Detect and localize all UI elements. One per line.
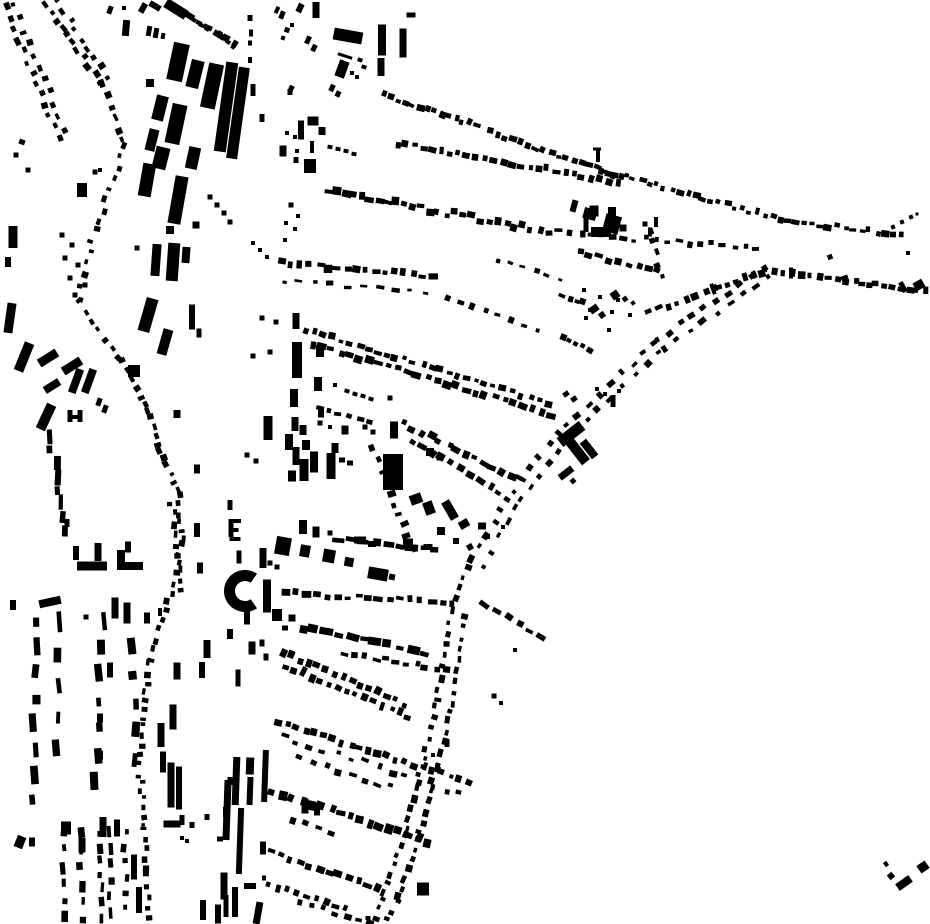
- building-footprint: [609, 234, 617, 240]
- building-footprint: [251, 354, 256, 359]
- building-footprint: [282, 626, 288, 631]
- building-footprint: [251, 84, 256, 96]
- building-footprint: [382, 656, 389, 661]
- building-footprint: [29, 838, 35, 847]
- building-footprint: [182, 535, 186, 541]
- building-footprint: [79, 881, 86, 893]
- building-footprint: [603, 392, 607, 396]
- building-footprint: [906, 287, 915, 294]
- building-footprint: [147, 894, 151, 900]
- building-footprint: [404, 544, 418, 552]
- building-footprint: [80, 917, 86, 924]
- building-footprint: [249, 642, 256, 655]
- building-footprint: [417, 203, 425, 208]
- building-footprint: [293, 313, 300, 329]
- building-footprint: [578, 248, 585, 254]
- building-footprint: [607, 328, 611, 332]
- building-footprint: [664, 240, 670, 244]
- building-footprint: [108, 877, 114, 884]
- building-footprint: [308, 117, 319, 126]
- building-footprint: [428, 273, 438, 279]
- building-footprint: [140, 732, 144, 739]
- building-footprint: [866, 282, 872, 288]
- building-footprint: [687, 241, 693, 248]
- building-footprint: [430, 547, 438, 553]
- building-footprint: [807, 273, 811, 279]
- building-footprint: [305, 261, 311, 267]
- building-footprint: [411, 270, 418, 277]
- building-footprint: [260, 114, 265, 122]
- building-footprint: [158, 608, 162, 616]
- building-footprint: [98, 897, 104, 907]
- building-footprint: [248, 41, 252, 46]
- building-footprint: [732, 206, 737, 211]
- building-footprint: [185, 839, 189, 843]
- building-footprint: [881, 230, 890, 238]
- building-footprint: [324, 265, 333, 273]
- building-footprint: [248, 15, 253, 21]
- building-footprint: [122, 6, 126, 10]
- building-footprint: [899, 231, 904, 237]
- building-footprint: [174, 410, 181, 418]
- building-footprint: [443, 666, 451, 673]
- building-footprint: [823, 224, 832, 232]
- building-footprint: [54, 456, 61, 470]
- building-footprint: [59, 494, 63, 509]
- building-footprint: [175, 500, 180, 506]
- building-footprint: [566, 229, 572, 236]
- building-footprint: [582, 288, 586, 292]
- building-footprint: [108, 907, 112, 918]
- building-footprint: [388, 396, 393, 401]
- building-footprint: [391, 197, 399, 206]
- building-footprint: [170, 705, 177, 730]
- building-footprint: [292, 342, 302, 378]
- building-footprint: [453, 538, 459, 544]
- building-footprint: [334, 412, 341, 417]
- building-footprint: [146, 915, 153, 921]
- building-footprint: [289, 615, 296, 622]
- building-footprint: [844, 226, 849, 230]
- building-footprint: [588, 233, 595, 237]
- building-footprint: [97, 831, 102, 837]
- building-footprint: [451, 691, 456, 696]
- building-footprint: [108, 858, 114, 868]
- building-footprint: [230, 537, 241, 541]
- building-footprint: [177, 518, 181, 524]
- building-footprint: [333, 383, 337, 387]
- building-footprint: [222, 211, 227, 216]
- building-footprint: [615, 179, 621, 187]
- building-footprint: [143, 871, 149, 877]
- building-footprint: [292, 588, 299, 595]
- building-footprint: [274, 536, 292, 556]
- building-footprint: [194, 523, 200, 537]
- building-footprint: [164, 821, 181, 828]
- building-footprint: [29, 713, 37, 732]
- building-footprint: [124, 603, 131, 624]
- building-footprint: [178, 578, 183, 583]
- building-footprint: [83, 283, 88, 288]
- building-footprint: [265, 255, 269, 259]
- building-footprint: [95, 543, 102, 561]
- building-footprint: [516, 164, 524, 170]
- building-footprint: [378, 25, 386, 56]
- building-footprint: [61, 911, 68, 922]
- building-footprint: [373, 538, 381, 546]
- building-footprint: [324, 594, 331, 600]
- building-footprint: [471, 154, 478, 161]
- building-footprint: [326, 281, 333, 286]
- building-footprint: [263, 580, 271, 613]
- building-footprint: [248, 57, 252, 63]
- building-footprint: [107, 826, 112, 838]
- building-footprint: [73, 546, 79, 560]
- building-footprint: [208, 195, 213, 200]
- building-footprint: [352, 265, 361, 273]
- building-footprint: [264, 416, 273, 440]
- building-footprint: [563, 169, 569, 177]
- building-footprint: [77, 827, 85, 838]
- building-footprint: [274, 320, 279, 325]
- building-footprint: [449, 601, 454, 608]
- building-footprint: [359, 192, 365, 200]
- building-footprint: [59, 511, 65, 523]
- building-footprint: [339, 458, 345, 463]
- building-footprint: [390, 422, 398, 439]
- building-footprint: [476, 218, 484, 225]
- building-footprint: [360, 636, 369, 641]
- building-footprint: [295, 149, 299, 153]
- building-footprint: [62, 879, 66, 887]
- building-footprint: [197, 563, 203, 574]
- building-footprint: [744, 244, 749, 249]
- building-footprint: [84, 615, 89, 620]
- building-footprint: [144, 672, 151, 679]
- building-footprint: [355, 75, 359, 79]
- building-footprint: [141, 823, 145, 827]
- building-footprint: [260, 316, 265, 321]
- building-footprint: [131, 721, 140, 737]
- building-footprint: [881, 283, 887, 289]
- building-footprint: [140, 780, 146, 784]
- building-footprint: [174, 663, 181, 680]
- building-footprint: [76, 263, 81, 268]
- building-footprint: [62, 898, 68, 904]
- building-footprint: [620, 225, 627, 232]
- building-footprint: [33, 742, 39, 757]
- building-footprint: [166, 226, 174, 234]
- building-footprint: [215, 905, 221, 924]
- building-footprint: [771, 267, 778, 275]
- building-footprint: [801, 220, 807, 225]
- building-footprint: [420, 664, 428, 671]
- building-footprint: [923, 287, 928, 295]
- building-footprint: [289, 203, 294, 208]
- building-footprint: [249, 30, 253, 37]
- building-footprint: [258, 248, 262, 252]
- building-footprint: [364, 595, 372, 601]
- building-footprint: [260, 640, 265, 647]
- building-footprint: [327, 145, 333, 150]
- building-footprint: [33, 637, 40, 655]
- building-footprint: [529, 165, 533, 170]
- building-footprint: [378, 58, 385, 76]
- building-footprint: [93, 170, 98, 175]
- building-footprint: [114, 820, 120, 837]
- building-footprint: [866, 226, 871, 232]
- building-footprint: [328, 425, 332, 429]
- building-footprint: [451, 701, 455, 708]
- building-footprint: [96, 698, 101, 707]
- building-footprint: [136, 775, 141, 779]
- building-footprint: [190, 822, 195, 828]
- building-footprint: [9, 226, 18, 248]
- building-footprint: [29, 794, 35, 805]
- building-footprint: [777, 217, 784, 224]
- building-footprint: [79, 847, 83, 854]
- building-footprint: [33, 618, 39, 627]
- building-footprint: [628, 313, 632, 317]
- building-footprint: [197, 329, 202, 338]
- building-footprint: [598, 233, 604, 237]
- building-footprint: [53, 648, 61, 663]
- building-footprint: [264, 654, 269, 661]
- building-footprint: [228, 220, 233, 225]
- building-footprint: [752, 247, 759, 251]
- building-footprint: [412, 143, 418, 147]
- building-footprint: [417, 883, 429, 896]
- building-footprint: [309, 903, 315, 908]
- building-footprint: [431, 753, 435, 757]
- building-footprint: [167, 502, 172, 506]
- building-footprint: [407, 13, 416, 18]
- building-footprint: [584, 216, 589, 232]
- building-footprint: [144, 884, 149, 889]
- building-footprint: [285, 131, 289, 135]
- building-footprint: [443, 641, 449, 647]
- building-footprint: [136, 887, 142, 913]
- building-footprint: [77, 283, 83, 288]
- building-footprint: [494, 217, 502, 226]
- building-footprint: [421, 746, 427, 753]
- building-footprint: [262, 876, 266, 881]
- building-footprint: [199, 662, 205, 678]
- building-footprint: [434, 667, 440, 673]
- building-footprint: [144, 613, 150, 624]
- building-footprint: [501, 525, 505, 529]
- building-footprint: [224, 895, 229, 917]
- building-footprint: [251, 241, 255, 245]
- building-footprint: [14, 153, 19, 158]
- building-footprint: [194, 465, 200, 474]
- building-footprint: [215, 203, 220, 208]
- building-footprint: [302, 440, 310, 450]
- building-footprint: [96, 722, 103, 732]
- building-footprint: [916, 213, 919, 216]
- building-footprint: [513, 648, 517, 652]
- building-footprint: [399, 268, 405, 276]
- building-footprint: [73, 293, 78, 298]
- building-footprint: [351, 152, 357, 157]
- building-footprint: [724, 200, 732, 206]
- building-footprint: [97, 872, 102, 878]
- building-footprint: [81, 897, 85, 905]
- building-footprint: [790, 268, 796, 277]
- building-footprint: [232, 887, 238, 917]
- building-footprint: [145, 682, 151, 687]
- building-footprint: [332, 443, 339, 453]
- building-footprint: [401, 140, 409, 148]
- building-footprint: [708, 240, 713, 245]
- building-footprint: [451, 208, 458, 215]
- building-footprint: [459, 212, 466, 218]
- building-footprint: [174, 531, 178, 538]
- building-footprint: [275, 565, 280, 570]
- building-footprint: [372, 269, 380, 274]
- building-footprint: [319, 127, 326, 135]
- building-footprint: [139, 744, 146, 749]
- building-footprint: [131, 855, 137, 880]
- building-footprint: [141, 707, 147, 712]
- building-footprint: [94, 748, 103, 764]
- building-footprint: [345, 596, 351, 600]
- building-footprint: [141, 722, 146, 726]
- building-footprint: [272, 609, 282, 621]
- building-footprint: [98, 168, 102, 172]
- building-footprint: [403, 662, 409, 666]
- building-footprint: [236, 670, 241, 687]
- building-footprint: [70, 243, 75, 248]
- building-footprint: [100, 914, 104, 924]
- building-footprint: [62, 525, 68, 536]
- building-footprint: [108, 843, 113, 855]
- building-footprint: [842, 279, 849, 286]
- building-footprint-map: [0, 0, 930, 924]
- building-footprint: [47, 429, 53, 444]
- building-footprint: [444, 789, 450, 795]
- map-viewport: [0, 0, 930, 924]
- building-footprint: [363, 267, 368, 273]
- building-footprint: [133, 699, 139, 710]
- building-footprint: [293, 227, 297, 231]
- building-footprint: [171, 521, 178, 529]
- building-footprint: [246, 757, 255, 774]
- building-footprint: [334, 594, 342, 600]
- building-footprint: [314, 377, 322, 391]
- building-footprint: [816, 273, 823, 281]
- building-footprint: [10, 600, 16, 610]
- building-footprint: [357, 540, 369, 545]
- building-footprint: [825, 276, 832, 280]
- building-footprint: [343, 149, 349, 154]
- building-footprint: [391, 660, 399, 665]
- building-footprint: [107, 891, 111, 900]
- building-footprint: [335, 147, 341, 152]
- building-footprint: [389, 574, 396, 581]
- building-footprint: [332, 186, 342, 195]
- building-footprint: [237, 551, 242, 564]
- building-footprint: [458, 656, 462, 663]
- building-footprint: [46, 445, 52, 453]
- building-footprint: [420, 146, 428, 152]
- building-footprint: [313, 591, 321, 598]
- building-footprint: [125, 542, 131, 553]
- building-footprint: [400, 29, 407, 58]
- building-footprint: [268, 561, 273, 566]
- building-footprint: [780, 270, 785, 276]
- building-footprint: [122, 20, 130, 37]
- building-footprint: [421, 545, 429, 550]
- building-footprint: [593, 148, 601, 151]
- building-footprint: [140, 827, 146, 830]
- building-footprint: [90, 772, 99, 791]
- building-footprint: [227, 629, 233, 639]
- building-footprint: [299, 544, 311, 558]
- building-footprint: [407, 289, 411, 292]
- building-footprint: [168, 763, 175, 808]
- building-footprint: [173, 509, 177, 515]
- building-footprint: [290, 23, 294, 27]
- building-footprint: [123, 562, 143, 570]
- building-footprint: [200, 900, 206, 920]
- building-footprint: [371, 430, 376, 435]
- building-footprint: [545, 230, 552, 235]
- building-footprint: [247, 777, 254, 805]
- building-footprint: [205, 814, 210, 820]
- building-footprint: [158, 723, 165, 747]
- building-footprint: [577, 174, 585, 181]
- building-footprint: [872, 281, 879, 287]
- building-footprint: [554, 228, 562, 232]
- building-footprint: [177, 491, 184, 498]
- building-footprint: [631, 239, 636, 243]
- building-footprint: [137, 752, 143, 758]
- building-footprint: [288, 471, 296, 482]
- building-footprint: [285, 434, 293, 450]
- building-footprint: [446, 620, 450, 625]
- building-footprint: [245, 453, 250, 458]
- building-footprint: [835, 276, 842, 283]
- building-footprint: [254, 459, 259, 464]
- building-footprint: [293, 135, 297, 139]
- building-footprint: [138, 788, 142, 794]
- building-footprint: [347, 461, 353, 466]
- building-footprint: [61, 830, 68, 837]
- building-footprint: [63, 256, 68, 261]
- building-footprint: [345, 266, 352, 271]
- building-footprint: [97, 843, 104, 854]
- building-footprint: [543, 164, 549, 171]
- building-footprint: [572, 170, 577, 176]
- building-footprint: [437, 527, 445, 535]
- building-footprint: [125, 829, 129, 834]
- building-footprint: [5, 257, 11, 267]
- building-footprint: [351, 652, 358, 658]
- building-footprint: [439, 147, 444, 155]
- building-footprint: [204, 640, 211, 658]
- building-footprint: [123, 905, 127, 910]
- building-footprint: [707, 199, 713, 205]
- building-footprint: [300, 459, 309, 481]
- building-footprint: [313, 527, 320, 538]
- building-footprint: [313, 280, 318, 284]
- building-footprint: [595, 387, 599, 391]
- building-footprint: [350, 71, 354, 75]
- building-footprint: [849, 228, 856, 232]
- building-footprint: [178, 565, 182, 572]
- building-footprint: [391, 267, 398, 274]
